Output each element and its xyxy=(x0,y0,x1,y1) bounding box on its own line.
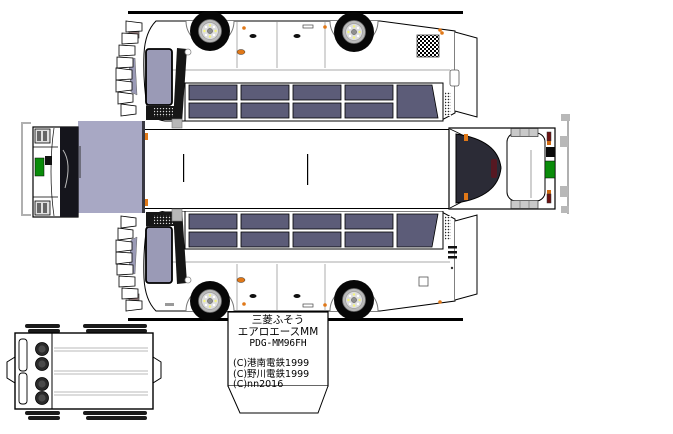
papercraft-canvas: 三菱ふそう エアロエースMM PDG-MM96FH (C)港南電鉄1999 (C… xyxy=(0,0,673,434)
roof-strip xyxy=(78,119,449,221)
chassis-panel xyxy=(7,324,161,420)
tail-light-left xyxy=(547,132,551,141)
fold-mark-1 xyxy=(183,154,184,182)
chassis-tab-left xyxy=(7,357,15,383)
rear-view xyxy=(449,114,570,214)
fold-mark-2 xyxy=(307,154,308,185)
license-plate-rear xyxy=(546,147,555,157)
front-view xyxy=(22,122,78,217)
bumper-bottom xyxy=(511,201,538,209)
guide-line-left xyxy=(22,122,31,216)
engine-vent-grille xyxy=(417,35,439,57)
tail-light-right xyxy=(547,194,551,203)
destination-sign-front xyxy=(35,158,44,176)
info-box-flap xyxy=(228,386,328,413)
credit-line-1: (C)港南電鉄1999 xyxy=(233,357,309,369)
chassis-tab-right xyxy=(153,357,161,383)
credit-line-3: (C)nn2016 xyxy=(233,379,283,390)
info-box: 三菱ふそう エアロエースMM PDG-MM96FH (C)港南電鉄1999 (C… xyxy=(228,312,328,413)
bumper-top xyxy=(511,129,538,137)
engine-hatch xyxy=(507,133,545,201)
side-panel-top xyxy=(116,11,477,123)
license-plate-front xyxy=(45,156,52,165)
destination-sign-rear xyxy=(545,161,555,178)
roof-front-section xyxy=(78,121,142,213)
windshield xyxy=(60,127,78,217)
model-code: PDG-MM96FH xyxy=(249,338,306,349)
papercraft-sheet: 三菱ふそう エアロエースMM PDG-MM96FH (C)港南電鉄1999 (C… xyxy=(0,0,673,434)
maker-name: 三菱ふそう xyxy=(252,314,305,326)
model-name: エアロエースMM xyxy=(238,326,319,338)
